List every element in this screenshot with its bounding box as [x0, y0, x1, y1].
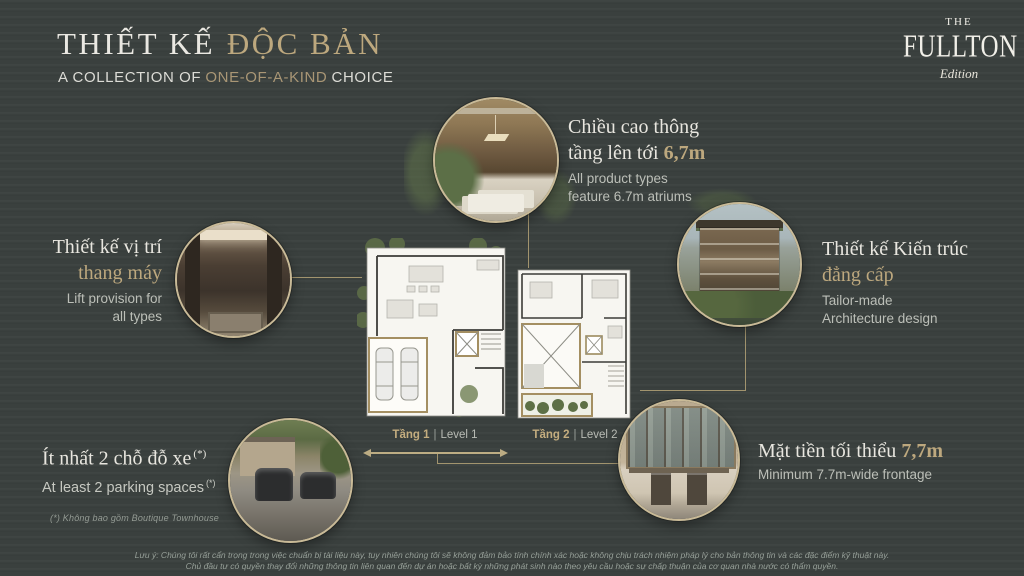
- elevator-ceiling-light: [200, 230, 268, 240]
- level2-label-en: Level 2: [580, 429, 617, 441]
- callout-frontage-en: Minimum 7.7m-wide frontage: [758, 466, 1008, 484]
- facade-door-left: [651, 473, 671, 505]
- villa-greenery: [679, 291, 800, 318]
- level1-label-vi: Tầng 1: [392, 429, 429, 441]
- architecture-en-line2: Architecture design: [822, 311, 938, 326]
- parking-en-note: (*): [206, 478, 216, 488]
- elevator-wall-right: [267, 232, 282, 327]
- atrium-photo-circle: [433, 97, 559, 223]
- connector-architecture-line-v: [745, 322, 746, 390]
- frontage-photo-circle: [618, 399, 740, 521]
- parking-en-text: At least 2 parking spaces: [42, 479, 204, 495]
- facade-awning: [629, 468, 728, 473]
- subtitle-highlight: ONE-OF-A-KIND: [205, 69, 327, 86]
- arrow-bar: [369, 452, 502, 454]
- arrow-right-head-icon: [500, 449, 508, 457]
- level1-label: Tầng 1|Level 1: [360, 429, 510, 441]
- chandelier-icon: [495, 115, 496, 136]
- level2-label-vi: Tầng 2: [532, 429, 569, 441]
- disclaimer: Lưu ý: Chúng tôi rất cẩn trọng trong việ…: [0, 550, 1024, 572]
- atrium-value: 6,7m: [664, 142, 706, 164]
- facade-door-right: [687, 473, 707, 505]
- callout-frontage-vi: Mặt tiền tối thiểu 7,7m: [758, 438, 1008, 464]
- callout-frontage: Mặt tiền tối thiểu 7,7m Minimum 7.7m-wid…: [758, 438, 1008, 484]
- fullton-logo: THE FULLTON Edition: [903, 16, 1015, 82]
- architecture-en-line1: Tailor-made: [822, 293, 893, 308]
- callout-parking: Ít nhất 2 chỗ đỗ xe(*) At least 2 parkin…: [42, 441, 277, 496]
- lift-en-line1: Lift provision for: [67, 291, 162, 306]
- footnote: (*) Không bao gồm Boutique Townhouse: [50, 513, 219, 523]
- atrium-beam: [435, 108, 557, 114]
- frontage-dimension-arrow: [363, 449, 508, 457]
- level2-floor-plan: [516, 266, 634, 422]
- villa-building-shape: [700, 228, 780, 298]
- frontage-value: 7,7m: [901, 440, 943, 462]
- car-sedan-shape: [300, 472, 336, 499]
- disclaimer-line1: Lưu ý: Chúng tôi rất cẩn trọng trong việ…: [0, 550, 1024, 561]
- callout-architecture: Thiết kế Kiến trúc đẳng cấp Tailor-made …: [822, 236, 1007, 328]
- callout-architecture-vi: Thiết kế Kiến trúc đẳng cấp: [822, 236, 1007, 288]
- level1-label-en: Level 1: [440, 429, 477, 441]
- sofa-shape: [468, 194, 524, 212]
- brochure-slide: THIẾT KẾĐỘC BẢN A COLLECTION OFONE-OF-A-…: [0, 0, 1024, 576]
- subtitle-post: CHOICE: [332, 69, 394, 86]
- architecture-photo-circle: [677, 202, 802, 327]
- facade-window-grid: [626, 406, 736, 469]
- lift-vi-line2: thang máy: [78, 262, 162, 284]
- architecture-vi-line1: Thiết kế Kiến trúc: [822, 238, 968, 260]
- level1-floor-plan: [357, 238, 512, 424]
- callout-lift-en: Lift provision for all types: [18, 290, 162, 326]
- callout-parking-vi: Ít nhất 2 chỗ đỗ xe(*): [42, 441, 277, 472]
- disclaimer-line2: Chủ đầu tư có quyền thay đổi những thông…: [0, 561, 1024, 572]
- callout-atrium-en: All product types feature 6.7m atriums: [568, 170, 783, 206]
- title-part-gold: ĐỘC BẢN: [227, 26, 383, 61]
- subtitle-pre: A COLLECTION OF: [58, 69, 201, 86]
- logo-wordmark: FULLTON: [903, 30, 1015, 65]
- lift-vi-line1: Thiết kế vị trí: [53, 236, 162, 258]
- elevator-wall-left: [185, 232, 200, 327]
- title-part-vi: THIẾT KẾ: [57, 26, 215, 61]
- callout-lift: Thiết kế vị trí thang máy Lift provision…: [18, 234, 162, 326]
- elevator-floor-mat: [208, 312, 264, 333]
- page-title: THIẾT KẾĐỘC BẢN: [57, 26, 383, 62]
- connector-lift-line: [288, 277, 362, 278]
- frontage-en-text: Minimum 7.7m-wide frontage: [758, 467, 932, 482]
- atrium-vi-line2: tầng lên tới: [568, 142, 659, 164]
- page-subtitle: A COLLECTION OFONE-OF-A-KINDCHOICE: [58, 69, 393, 86]
- lift-photo-circle: [175, 221, 292, 338]
- frontage-vi-text: Mặt tiền tối thiểu: [758, 440, 896, 462]
- architecture-vi-line2: đẳng cấp: [822, 264, 894, 286]
- callout-atrium-height: Chiều cao thông tầng lên tới 6,7m All pr…: [568, 114, 783, 206]
- connector-architecture-line-h: [640, 390, 746, 391]
- atrium-en-line2: feature 6.7m atriums: [568, 189, 692, 204]
- level2-label-divider: |: [573, 429, 576, 441]
- atrium-vi-line1: Chiều cao thông: [568, 116, 699, 138]
- parking-vi-note: (*): [193, 448, 206, 460]
- connector-frontage-line-h: [437, 463, 619, 464]
- callout-parking-en: At least 2 parking spaces(*): [42, 474, 277, 497]
- level1-label-divider: |: [433, 429, 436, 441]
- logo-edition: Edition: [903, 66, 1015, 82]
- atrium-en-line1: All product types: [568, 171, 668, 186]
- logo-the: THE: [903, 16, 1015, 28]
- villa-roof-shape: [696, 220, 783, 228]
- parking-vi-text: Ít nhất 2 chỗ đỗ xe: [42, 448, 191, 470]
- callout-atrium-vi: Chiều cao thông tầng lên tới 6,7m: [568, 114, 783, 166]
- callout-architecture-en: Tailor-made Architecture design: [822, 292, 1007, 328]
- callout-lift-vi: Thiết kế vị trí thang máy: [18, 234, 162, 286]
- lift-en-line2: all types: [112, 309, 162, 324]
